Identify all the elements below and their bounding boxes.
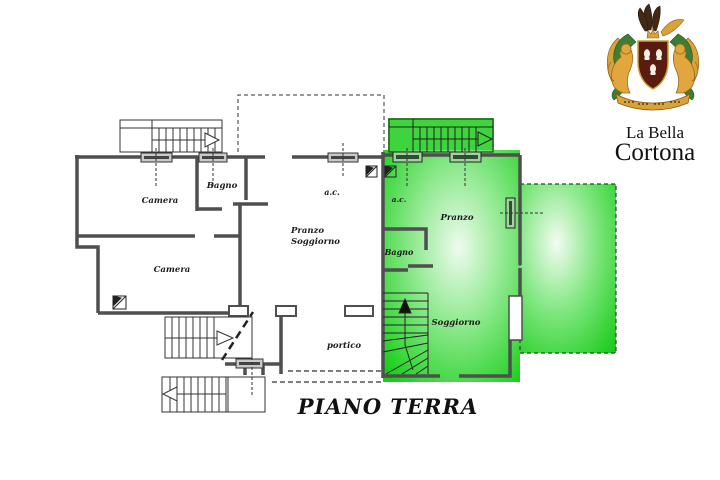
portico-pillar-2 xyxy=(345,306,373,316)
room-label-soggiorno-green: Soggiorno xyxy=(432,318,481,328)
door-corner-icon xyxy=(113,296,126,309)
room-label-portico: portico xyxy=(327,341,361,351)
motto-banner-icon xyxy=(616,94,690,110)
wall-foot-cap xyxy=(229,306,248,316)
portico-open-edge xyxy=(272,371,383,382)
wall-notch-east xyxy=(509,296,522,340)
room-label-bagno-green: Bagno xyxy=(384,247,414,257)
floor-title: PIANO TERRA xyxy=(297,394,479,419)
room-label-camera-2: Camera xyxy=(154,265,191,275)
room-label-ac-green: a.c. xyxy=(392,195,407,204)
room-label-ac-left: a.c. xyxy=(324,187,340,197)
roof-overhang-dashed-outline xyxy=(238,95,384,152)
staircase-bottom xyxy=(162,377,265,412)
stair-arrow-right-icon xyxy=(217,331,233,345)
floor-plan-page: Camera Bagno Camera Pranzo Soggiorno a.c… xyxy=(0,0,720,480)
highlight-main-block xyxy=(383,150,520,382)
staircase-mid xyxy=(165,317,252,358)
floor-plan-canvas: Camera Bagno Camera Pranzo Soggiorno a.c… xyxy=(0,0,720,480)
brand-name-line2: Cortona xyxy=(615,139,696,166)
room-label-bagno-1: Bagno xyxy=(206,181,238,191)
shield-icon xyxy=(638,41,668,89)
coat-of-arms-logo xyxy=(607,4,699,110)
door-corner-icon xyxy=(366,166,377,177)
window xyxy=(236,359,263,368)
room-label-pranzo-soggiorno-2: Soggiorno xyxy=(291,237,340,247)
room-label-pranzo-green: Pranzo xyxy=(439,213,473,223)
staircase-top-left xyxy=(120,120,222,152)
room-label-pranzo-soggiorno-1: Pranzo xyxy=(290,226,324,236)
crown-icon xyxy=(647,29,659,38)
stair-arrow-right-icon xyxy=(205,133,219,147)
room-label-camera-1: Camera xyxy=(142,196,179,206)
highlight-terrace-dashed xyxy=(520,184,616,353)
plumes-icon xyxy=(638,4,660,31)
portico-pillar-1 xyxy=(276,306,296,316)
